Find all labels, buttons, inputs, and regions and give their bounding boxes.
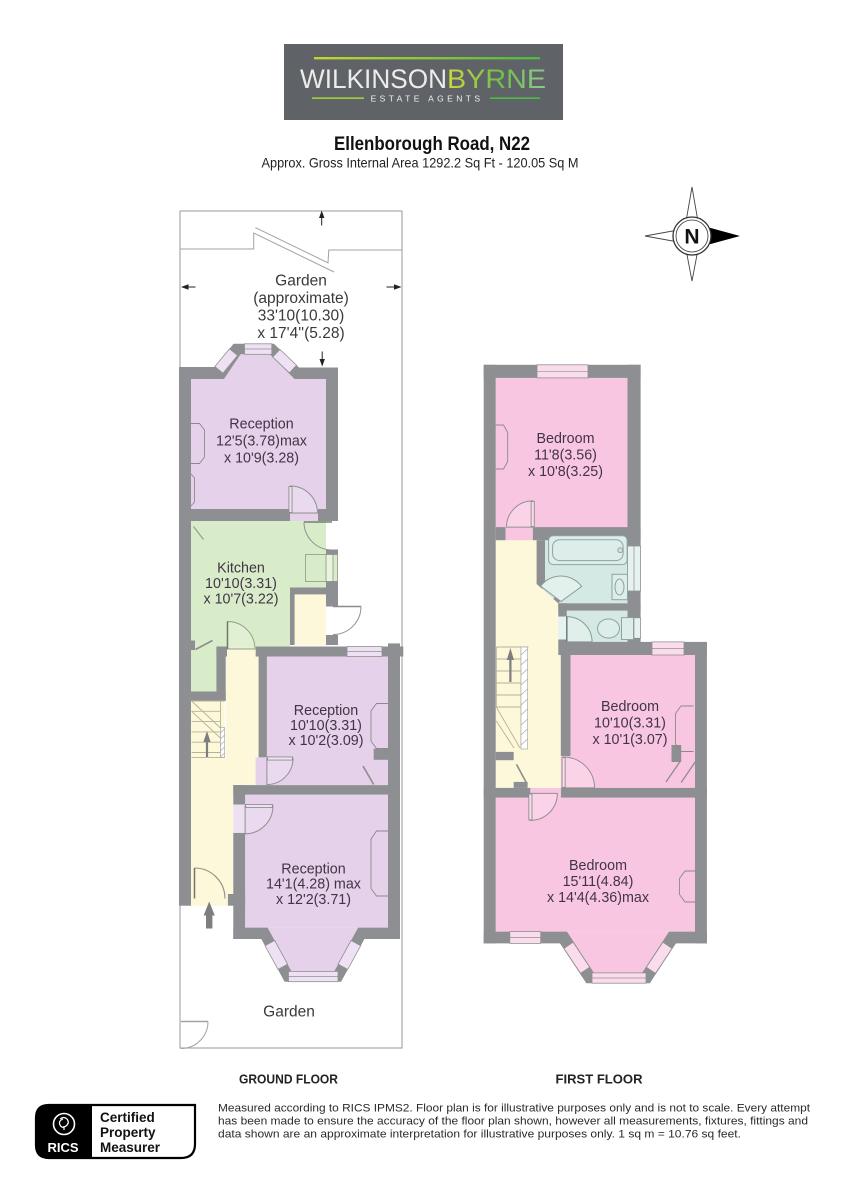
svg-text:11'8(3.56): 11'8(3.56) [534, 448, 597, 464]
svg-text:Garden: Garden [263, 1004, 315, 1021]
svg-text:Measured according to RICS IPM: Measured according to RICS IPMS2. Floor … [218, 1103, 811, 1115]
svg-text:Ellenborough Road, N22: Ellenborough Road, N22 [334, 133, 530, 155]
svg-text:x 10'8(3.25): x 10'8(3.25) [528, 464, 603, 480]
svg-text:has been made to ensure the ac: has been made to ensure the accuracy of … [218, 1116, 808, 1128]
svg-text:x 12'2(3.71): x 12'2(3.71) [276, 892, 351, 908]
svg-text:Measurer: Measurer [100, 1140, 161, 1155]
svg-text:10'10(3.31): 10'10(3.31) [205, 576, 277, 592]
svg-text:x 10'9(3.28): x 10'9(3.28) [224, 451, 299, 467]
svg-text:Property: Property [100, 1125, 156, 1140]
svg-text:x 10'7(3.22): x 10'7(3.22) [203, 592, 278, 608]
svg-text:Kitchen: Kitchen [217, 561, 265, 577]
svg-text:Reception: Reception [294, 703, 358, 719]
svg-text:RICS: RICS [47, 1140, 78, 1155]
svg-text:BYRNE: BYRNE [447, 64, 546, 94]
svg-text:GROUND FLOOR: GROUND FLOOR [239, 1073, 338, 1087]
svg-text:Bedroom: Bedroom [601, 699, 659, 715]
svg-text:(approximate): (approximate) [253, 290, 349, 307]
svg-text:15'11(4.84): 15'11(4.84) [563, 874, 634, 890]
svg-text:14'1(4.28) max: 14'1(4.28) max [266, 877, 361, 893]
svg-text:x 10'2(3.09): x 10'2(3.09) [288, 733, 363, 749]
svg-text:x 10'1(3.07): x 10'1(3.07) [592, 732, 667, 748]
svg-text:FIRST FLOOR: FIRST FLOOR [556, 1073, 643, 1087]
svg-text:Garden: Garden [275, 273, 327, 290]
svg-text:Bedroom: Bedroom [536, 431, 594, 447]
svg-text:N: N [684, 226, 699, 249]
svg-text:ESTATE AGENTS: ESTATE AGENTS [371, 94, 484, 104]
svg-text:data shown are an approximate: data shown are an approximate interpreta… [218, 1129, 741, 1141]
svg-text:10'10(3.31): 10'10(3.31) [290, 718, 362, 734]
svg-text:x 14'4(4.36)max: x 14'4(4.36)max [547, 890, 649, 906]
svg-text:Reception: Reception [229, 417, 293, 433]
svg-text:12'5(3.78)max: 12'5(3.78)max [216, 434, 307, 450]
svg-text:Bedroom: Bedroom [569, 858, 627, 874]
svg-text:10'10(3.31): 10'10(3.31) [594, 716, 666, 732]
svg-text:WILKINSON: WILKINSON [300, 64, 447, 94]
svg-text:Reception: Reception [281, 862, 345, 878]
svg-text:x 17'4''(5.28): x 17'4''(5.28) [257, 325, 344, 342]
svg-text:Certified: Certified [100, 1110, 155, 1125]
svg-text:33'10(10.30): 33'10(10.30) [258, 308, 345, 325]
svg-text:Approx. Gross Internal Area 12: Approx. Gross Internal Area 1292.2 Sq Ft… [262, 156, 579, 171]
